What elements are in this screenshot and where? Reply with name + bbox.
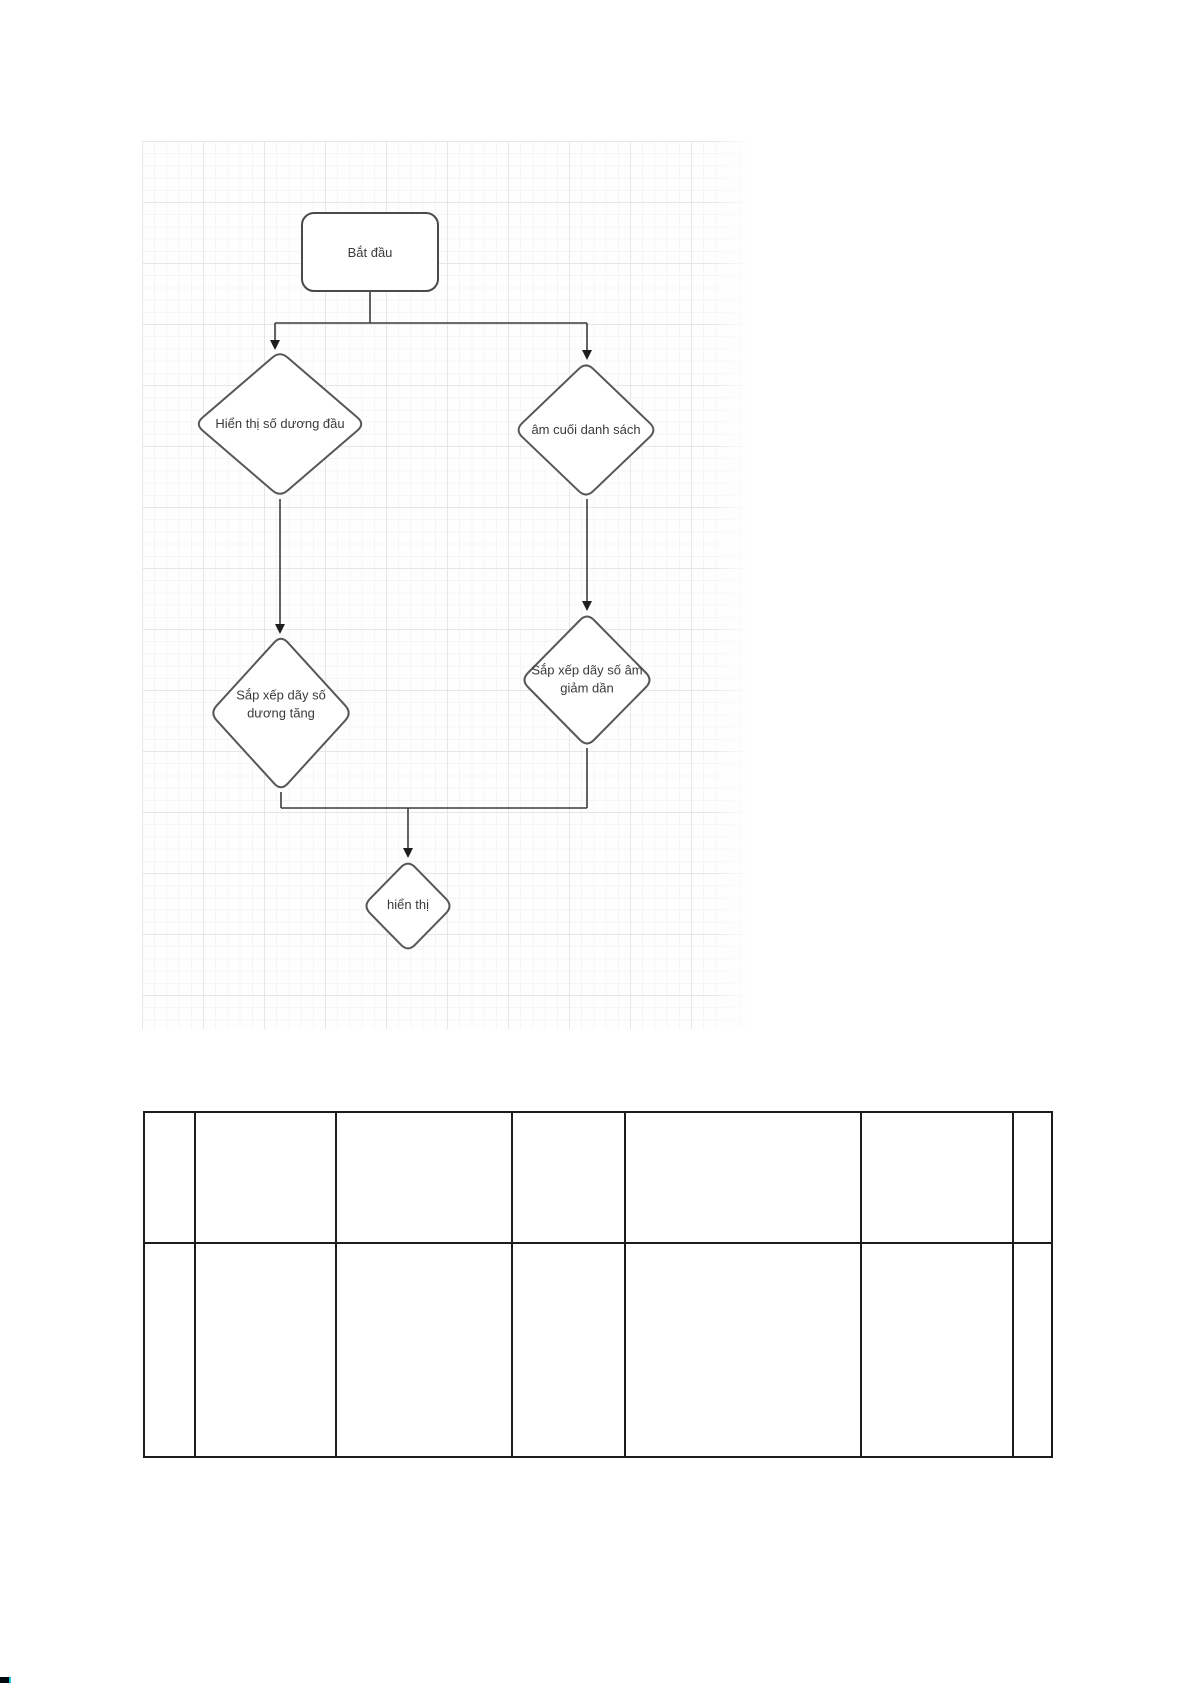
flowchart-canvas[interactable]: Bắt đầu Hiển thị số dương đầu âm cuối da… bbox=[142, 141, 750, 1029]
table-cell[interactable] bbox=[625, 1112, 861, 1243]
arrow-top-left-icon bbox=[270, 340, 280, 350]
flowchart-node-start-label: Bắt đầu bbox=[348, 244, 393, 262]
table-cell[interactable] bbox=[336, 1243, 512, 1457]
table-cell[interactable] bbox=[512, 1243, 625, 1457]
flowchart-shapes bbox=[142, 141, 750, 1029]
flowchart-node-end-label: hiển thị bbox=[387, 896, 429, 914]
table-row bbox=[144, 1243, 1052, 1457]
table-cell[interactable] bbox=[336, 1112, 512, 1243]
flowchart-node-top-right-label: âm cuối danh sách bbox=[531, 421, 640, 439]
table-cell[interactable] bbox=[195, 1243, 336, 1457]
table-cell[interactable] bbox=[1013, 1112, 1052, 1243]
table-cell[interactable] bbox=[1013, 1243, 1052, 1457]
arrow-top-right-icon bbox=[582, 350, 592, 360]
flowchart-node-mid-left-label: Sắp xếp dãy số dương tăng bbox=[229, 686, 333, 721]
flowchart-node-mid-right-label: Sắp xếp dãy số âm giảm dần bbox=[524, 661, 650, 696]
table-cell[interactable] bbox=[861, 1243, 1013, 1457]
table-cell[interactable] bbox=[625, 1243, 861, 1457]
table-cell[interactable] bbox=[144, 1112, 195, 1243]
document-page: Bắt đầu Hiển thị số dương đầu âm cuối da… bbox=[0, 0, 1192, 1683]
arrow-end-icon bbox=[403, 848, 413, 858]
table-cell[interactable] bbox=[512, 1112, 625, 1243]
arrow-mid-right-icon bbox=[582, 601, 592, 611]
table-row bbox=[144, 1112, 1052, 1243]
corner-artifact-mark bbox=[0, 1677, 11, 1683]
table-cell[interactable] bbox=[861, 1112, 1013, 1243]
table-cell[interactable] bbox=[144, 1243, 195, 1457]
table-cell[interactable] bbox=[195, 1112, 336, 1243]
connector-lines bbox=[275, 291, 587, 848]
flowchart-node-top-left-label: Hiển thị số dương đầu bbox=[215, 415, 344, 433]
content-table bbox=[143, 1111, 1053, 1458]
arrow-mid-left-icon bbox=[275, 624, 285, 634]
content-table-body bbox=[144, 1112, 1052, 1457]
